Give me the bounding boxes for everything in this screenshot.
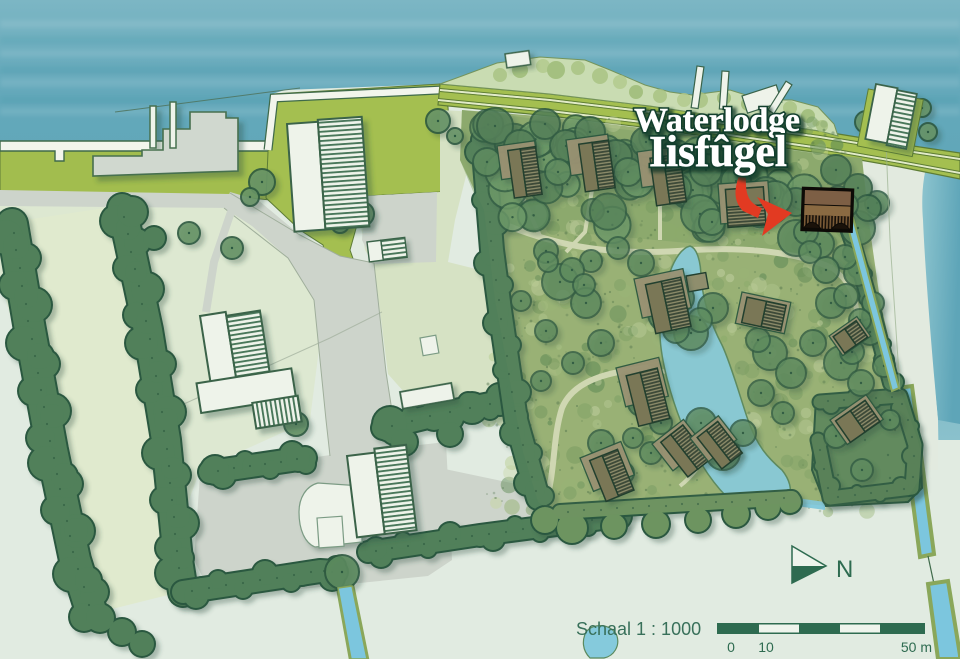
svg-text:Schaal 1 : 1000: Schaal 1 : 1000 — [576, 619, 701, 639]
svg-text:Iisfûgel: Iisfûgel — [649, 127, 787, 176]
svg-text:0: 0 — [727, 639, 735, 655]
svg-text:N: N — [836, 556, 853, 583]
svg-text:10: 10 — [758, 639, 774, 655]
svg-text:50 m: 50 m — [901, 639, 932, 655]
